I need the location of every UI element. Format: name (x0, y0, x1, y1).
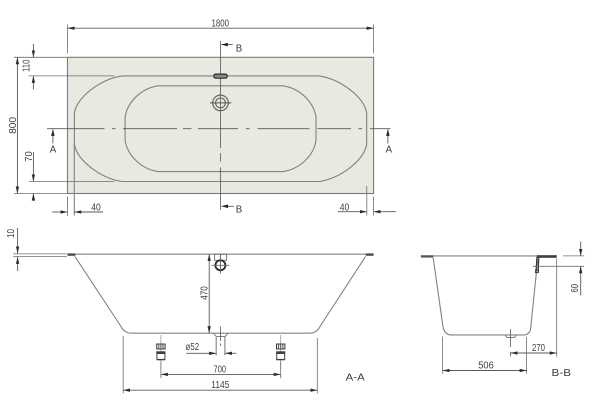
svg-text:270: 270 (532, 343, 545, 354)
svg-text:470: 470 (199, 286, 210, 300)
svg-text:800: 800 (8, 116, 19, 133)
svg-text:506: 506 (478, 360, 494, 371)
svg-text:40: 40 (340, 203, 350, 214)
svg-text:B-B: B-B (552, 367, 572, 379)
svg-text:70: 70 (24, 151, 35, 162)
svg-text:110: 110 (22, 59, 33, 72)
svg-text:1800: 1800 (212, 19, 230, 30)
svg-text:700: 700 (214, 364, 227, 375)
svg-text:A: A (50, 144, 57, 155)
svg-text:A-A: A-A (346, 372, 365, 384)
svg-text:B: B (236, 204, 242, 215)
svg-text:1145: 1145 (211, 380, 229, 391)
svg-text:60: 60 (570, 284, 581, 293)
svg-text:B: B (236, 43, 242, 54)
svg-text:ø52: ø52 (186, 342, 200, 353)
svg-text:A: A (386, 144, 393, 155)
svg-text:40: 40 (91, 203, 101, 214)
svg-text:10: 10 (6, 229, 17, 238)
